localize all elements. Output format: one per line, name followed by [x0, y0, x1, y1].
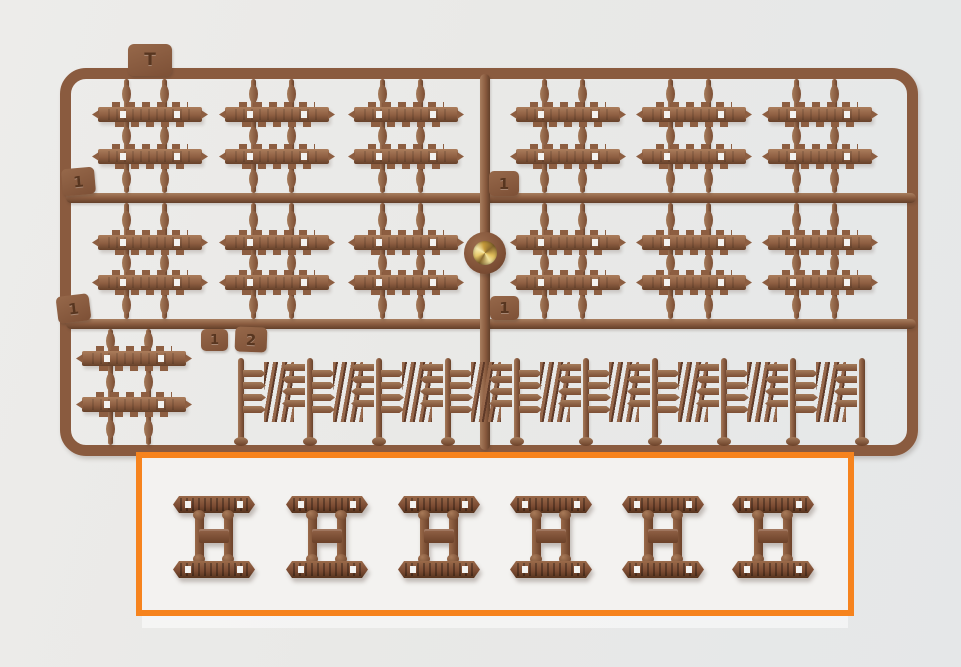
box-reflection — [142, 616, 848, 628]
part-number-tab: 1 — [489, 171, 519, 196]
ejector-boss — [464, 232, 506, 274]
assembled-track-link-set — [173, 496, 255, 578]
sprue-gate-tab-T: T — [128, 44, 172, 76]
sprue-rail-lower — [66, 319, 916, 329]
assembled-track-link-set — [510, 496, 592, 578]
spring-link-cell — [307, 358, 376, 446]
assembled-track-link-set — [398, 496, 480, 578]
assembled-track-link-set — [622, 496, 704, 578]
spring-link-cell — [514, 358, 583, 446]
assembled-track-link-set — [286, 496, 368, 578]
part-number-tab: 1 — [55, 293, 91, 324]
part-number-tab: 2 — [235, 326, 268, 352]
spring-link-cell — [376, 358, 445, 446]
spring-link-cell — [652, 358, 721, 446]
spring-link-cell — [790, 358, 859, 446]
spring-link-row — [238, 358, 868, 450]
gold-insert — [473, 241, 497, 265]
assembled-links-area — [142, 458, 848, 610]
part-number-tab: 1 — [61, 167, 96, 197]
spring-link-cell — [238, 358, 307, 446]
part-number-tab: 1 — [201, 329, 228, 351]
assembled-track-link-set — [732, 496, 814, 578]
spring-link-cell — [583, 358, 652, 446]
photo-canvas: T 1 1 1 1 1 2 — [0, 0, 961, 667]
spring-link-cell — [445, 358, 514, 446]
spring-link-cell — [721, 358, 790, 446]
part-number-tab: 1 — [490, 296, 519, 320]
highlight-box — [136, 452, 854, 616]
